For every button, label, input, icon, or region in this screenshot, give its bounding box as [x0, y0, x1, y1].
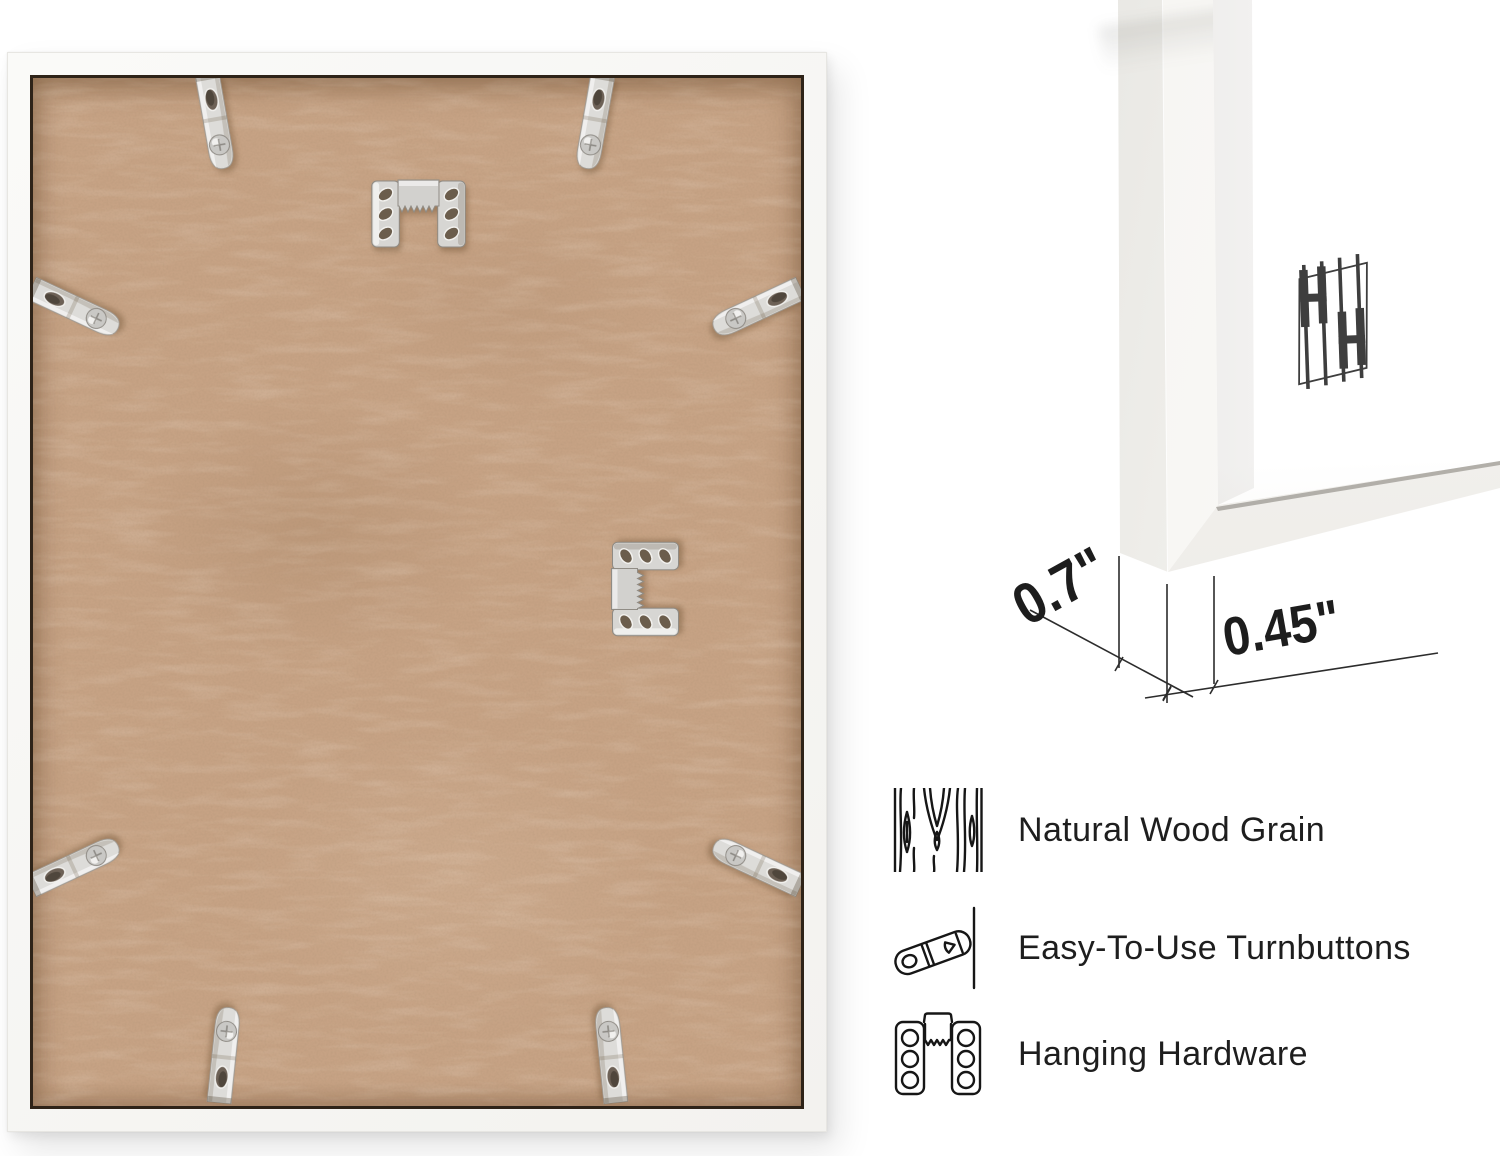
sawtooth-hanger-side [611, 542, 681, 637]
feature-label: Hanging Hardware [1018, 1035, 1308, 1074]
frame-product-infographic: 0.7" 0.45" Natural Wood Grain [0, 0, 1500, 1156]
face-width-label: 0.45" [1218, 587, 1344, 667]
feature-row: Easy-To-Use Turnbuttons [892, 906, 1411, 990]
turnbutton-icon [892, 906, 984, 990]
mdf-backing [30, 75, 804, 1109]
sawtooth-hanger-top [371, 179, 466, 249]
hanging-hardware-icon [892, 1012, 984, 1096]
hh-bars-logo [1291, 251, 1376, 397]
sawtooth-hanger [611, 542, 681, 637]
sawtooth-hanger [371, 179, 466, 249]
feature-row: Hanging Hardware [892, 1012, 1308, 1096]
feature-label: Easy-To-Use Turnbuttons [1018, 929, 1411, 968]
feature-row: Natural Wood Grain [892, 788, 1325, 872]
face-dimension-line [1145, 653, 1438, 698]
frame-back-view [7, 52, 827, 1132]
wood-grain-icon [892, 788, 984, 872]
depth-label: 0.7" [1001, 540, 1118, 638]
feature-label: Natural Wood Grain [1018, 811, 1325, 850]
